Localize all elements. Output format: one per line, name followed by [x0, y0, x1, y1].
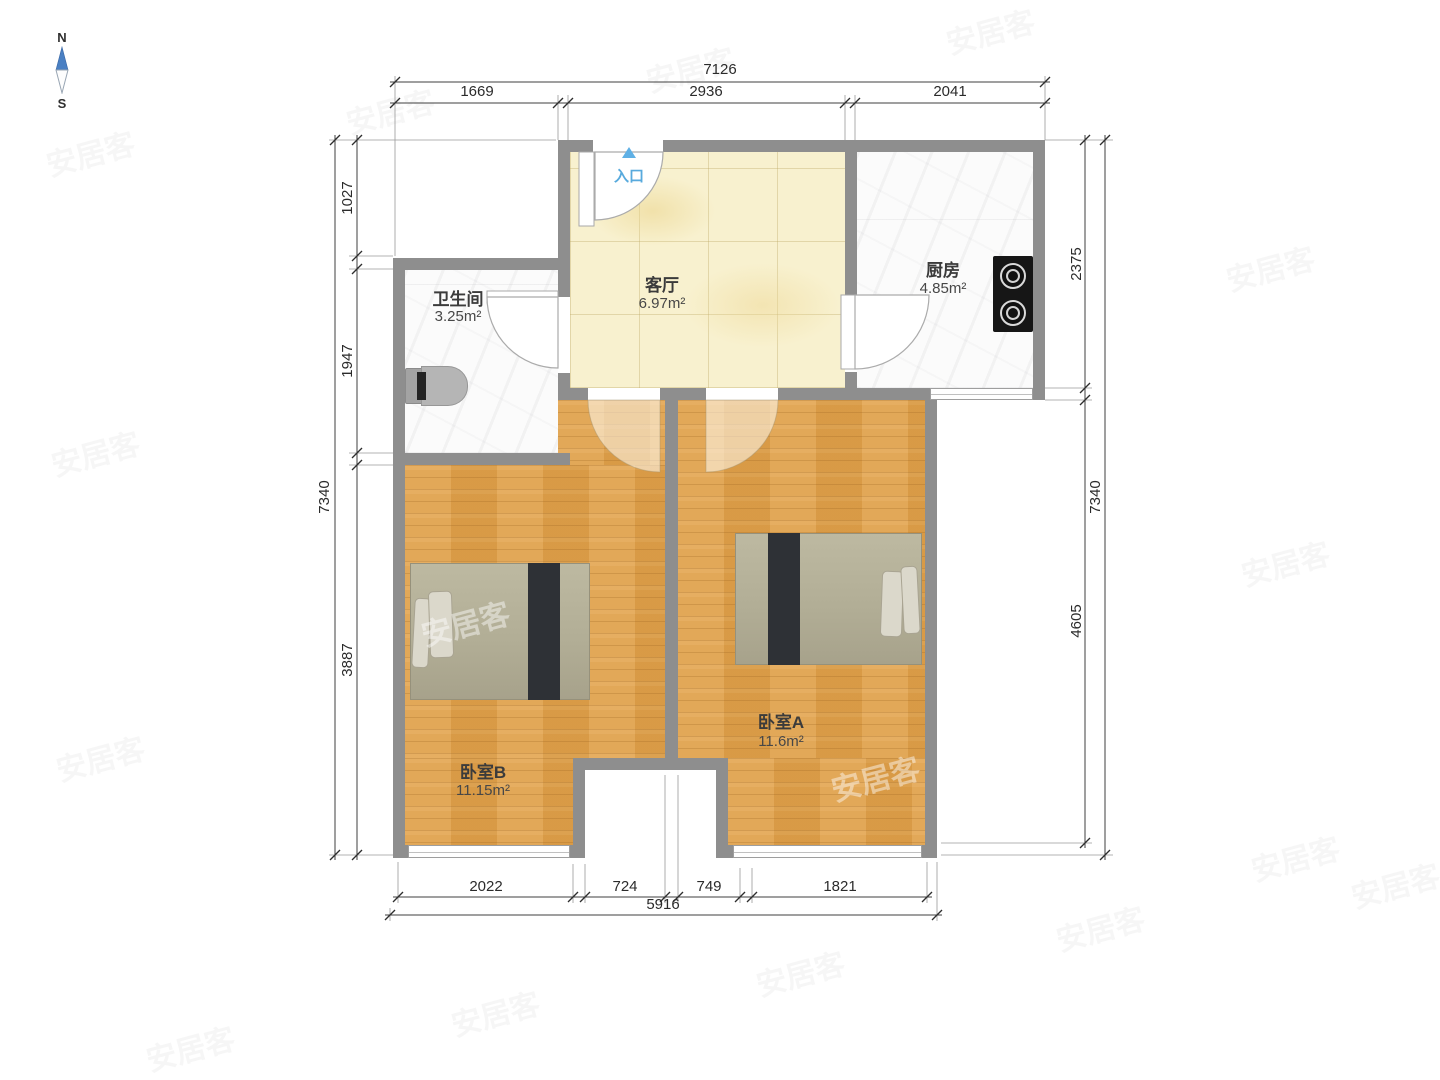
dim-label: 1947 — [340, 326, 356, 396]
dim-label: 4605 — [1069, 586, 1085, 656]
dim-label: 724 — [590, 879, 660, 895]
dimension-ticks — [330, 77, 1110, 920]
dim-label: 1027 — [340, 163, 356, 233]
dim-label: 2041 — [915, 84, 985, 100]
dim-label: 1669 — [442, 84, 512, 100]
dim-label: 2022 — [451, 879, 521, 895]
dim-label-right-total: 7340 — [1088, 462, 1104, 532]
dim-label: 2936 — [671, 84, 741, 100]
dim-label: 749 — [674, 879, 744, 895]
dim-label: 3887 — [340, 625, 356, 695]
extension-lines — [329, 76, 1113, 921]
dimension-rules — [335, 82, 1105, 915]
dim-label: 2375 — [1069, 229, 1085, 299]
floorplan-canvas: 安居客 安居客 安居客 安居客 安居客 安居客 安居客 安居客 安居客 安居客 … — [0, 0, 1440, 1080]
dim-label-left-total: 7340 — [317, 462, 333, 532]
dim-label-bottom-total: 5916 — [628, 897, 698, 913]
dim-label-top-total: 7126 — [685, 62, 755, 78]
dimension-lines-layer — [0, 0, 1440, 1080]
dim-label: 1821 — [805, 879, 875, 895]
